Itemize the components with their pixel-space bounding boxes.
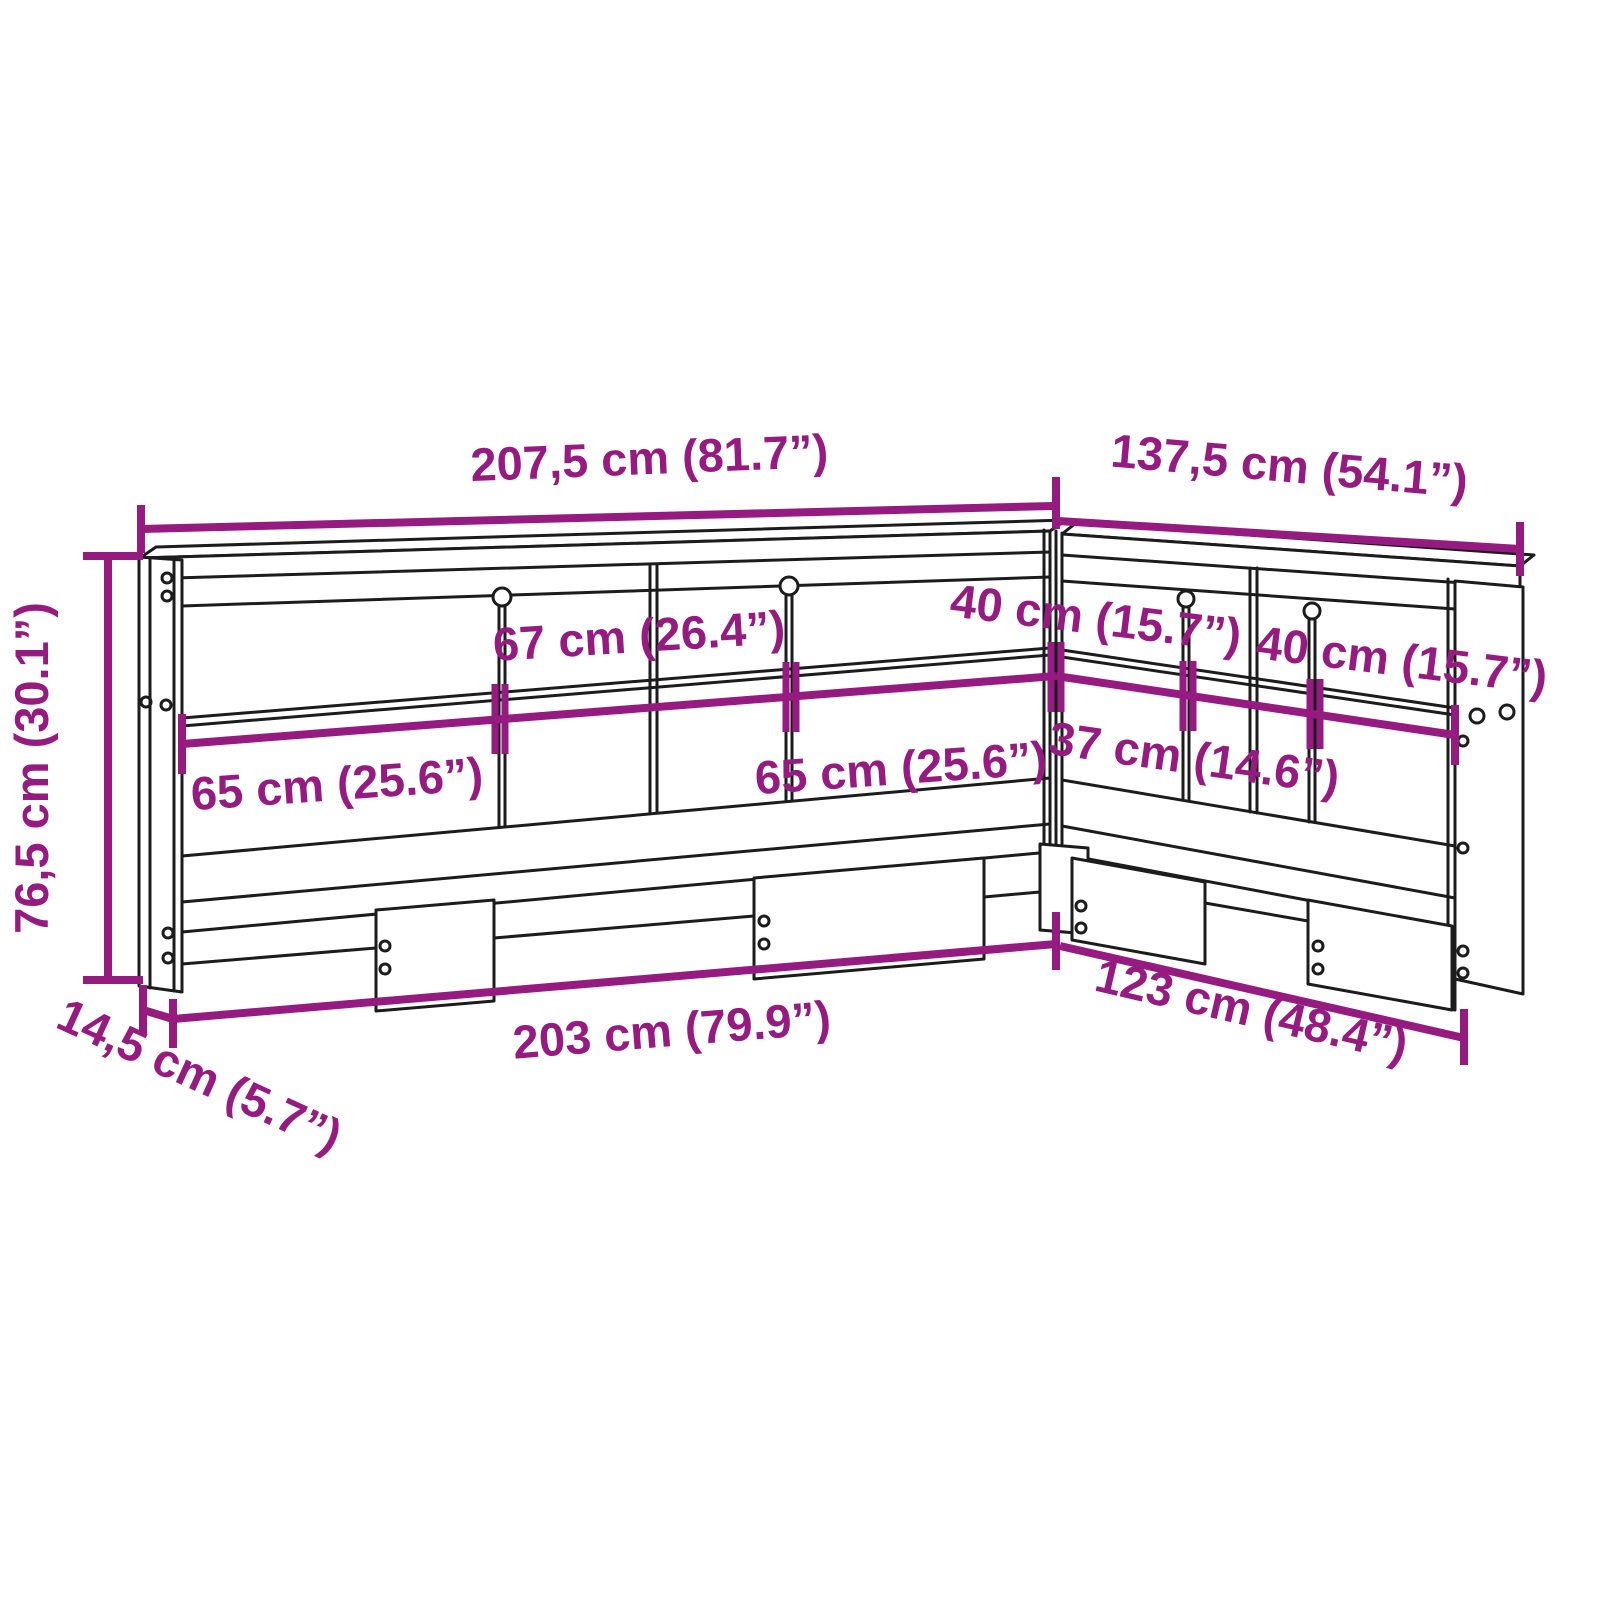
- left-back-rail-top: [182, 577, 1050, 606]
- dim-label-total-width-left: 207,5 cm (81.7”): [469, 424, 829, 491]
- diagram-canvas: 207,5 cm (81.7”) 137,5 cm (54.1”) 76,5 c…: [0, 0, 1600, 1600]
- dim-label-total-width-right: 137,5 cm (54.1”): [1109, 424, 1470, 508]
- dowel-hole: [780, 577, 798, 595]
- dim-line-openings-left: [182, 676, 1056, 744]
- dim-label-height: 76,5 cm (30.1”): [5, 602, 58, 934]
- dim-label-opening-left-outer: 65 cm (25.6”): [189, 747, 485, 820]
- foot-panel: [1308, 900, 1452, 1010]
- dim-label-opening-left-inner: 65 cm (25.6”): [753, 731, 1049, 804]
- dim-line-depth: [143, 1010, 173, 1019]
- dowel-hole: [493, 588, 511, 606]
- headboard-dimension-diagram: 207,5 cm (81.7”) 137,5 cm (54.1”) 76,5 c…: [0, 0, 1600, 1600]
- foot-panel: [1072, 858, 1205, 964]
- dowel-hole: [1304, 603, 1320, 619]
- dim-label-base-width-left: 203 cm (79.9”): [511, 990, 833, 1068]
- dim-label-opening-right-inner: 40 cm (15.7”): [948, 573, 1245, 661]
- dim-label-opening-left-center: 67 cm (26.4”): [491, 600, 786, 671]
- left-end-panel: [139, 557, 182, 992]
